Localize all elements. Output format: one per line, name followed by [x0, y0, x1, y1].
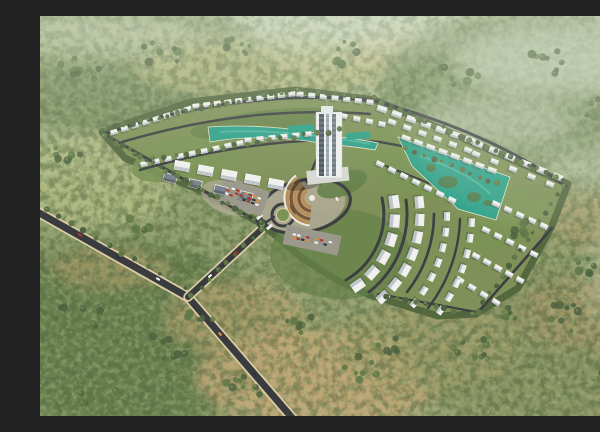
- aerial-render: [40, 16, 600, 416]
- aerial-render-figure: Aerial 3D rendering of a master-planned …: [40, 16, 600, 416]
- atmosphere-layer: [40, 16, 600, 416]
